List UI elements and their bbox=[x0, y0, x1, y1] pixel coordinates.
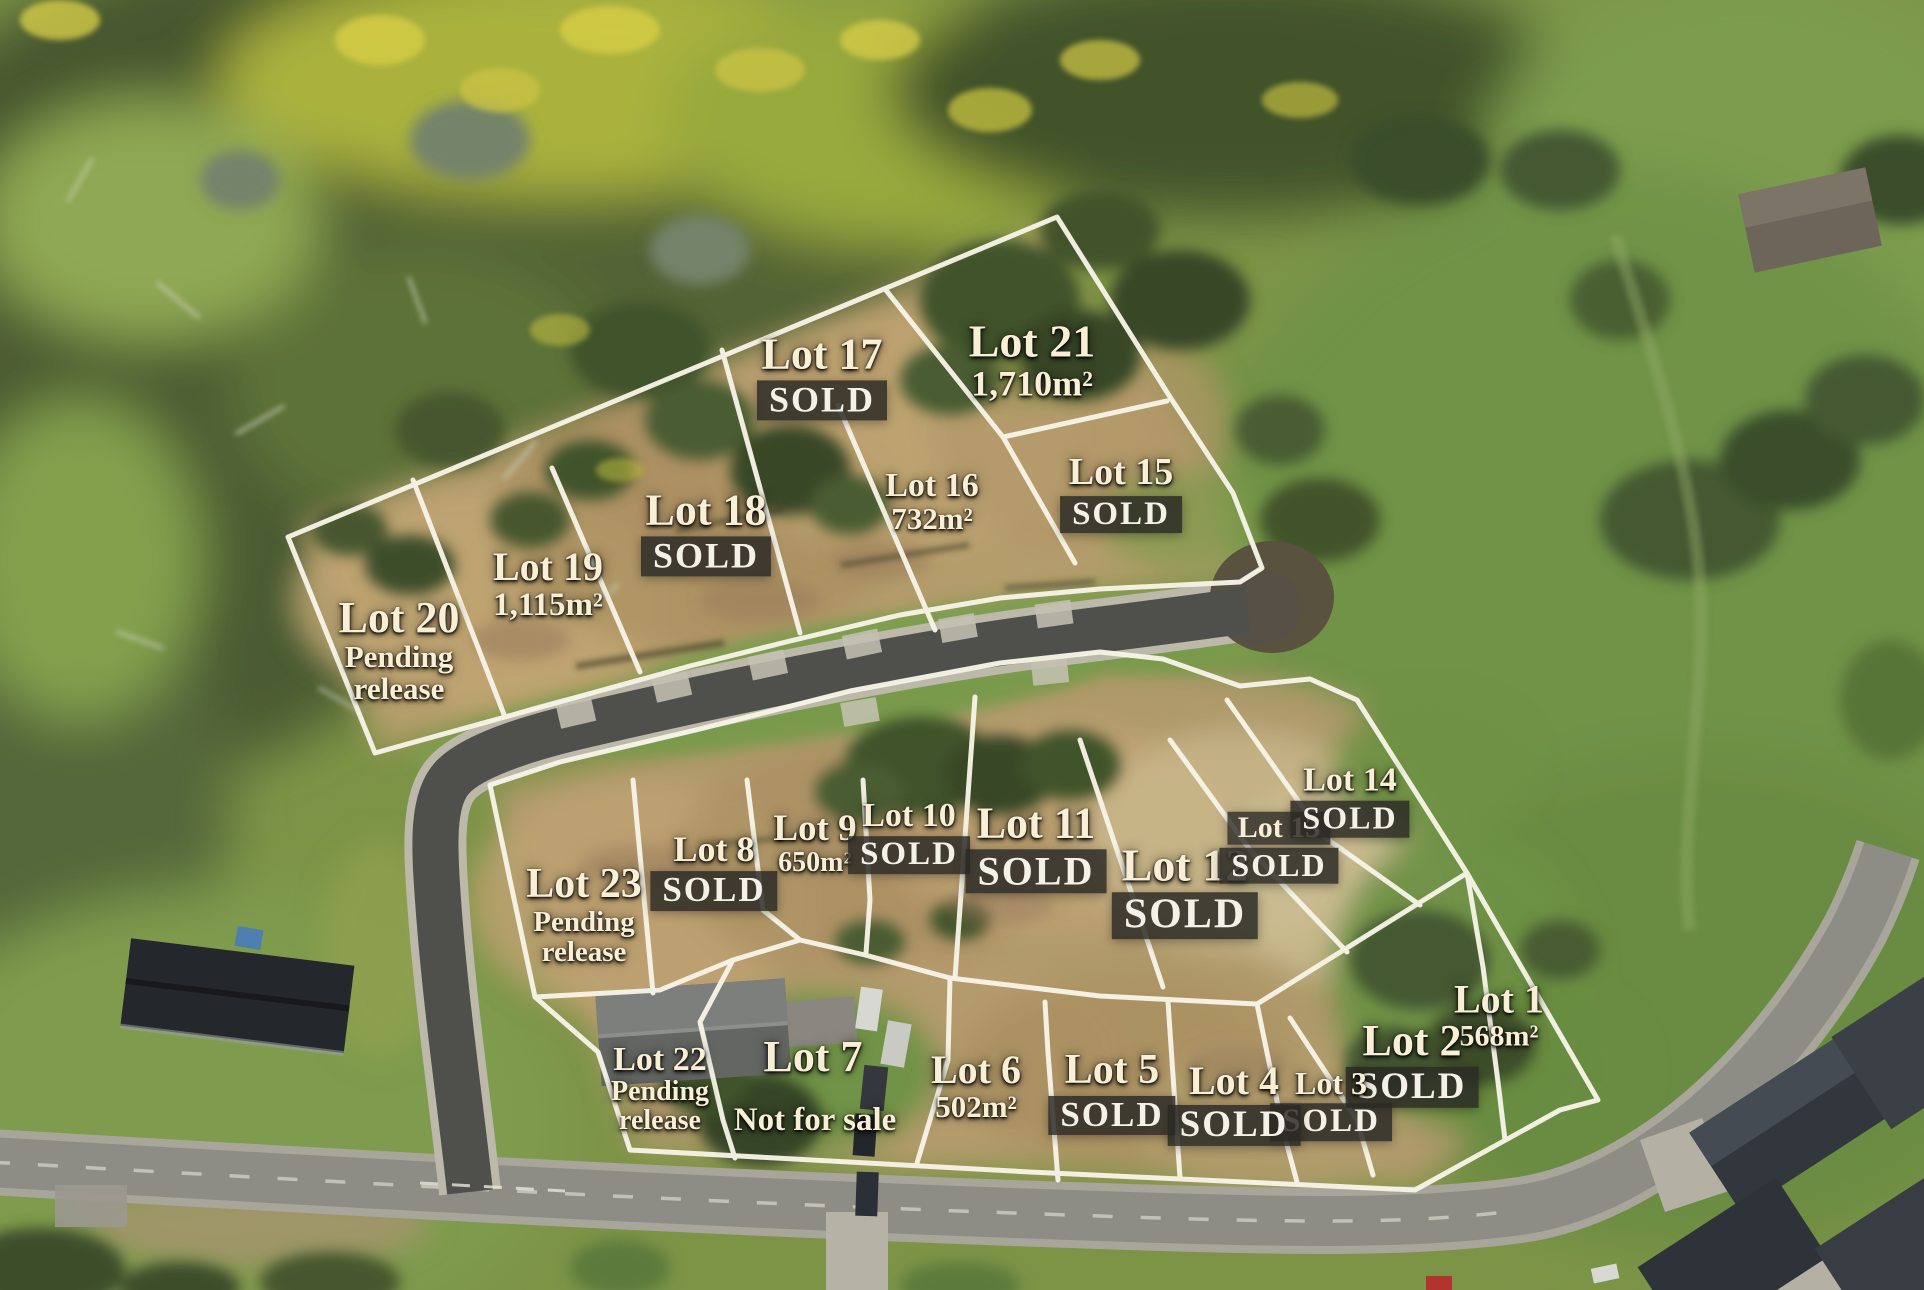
lot-9-label-line-1: 650m² bbox=[778, 849, 852, 878]
lot-4-label: Lot 4SOLD bbox=[1168, 1060, 1301, 1146]
lot-20-label-line-0: Lot 20 bbox=[339, 595, 460, 641]
lot-22-label-line-2: release bbox=[619, 1107, 701, 1136]
lot-22-label-line-0: Lot 22 bbox=[613, 1042, 707, 1077]
lot-21-label-line-0: Lot 21 bbox=[969, 317, 1096, 365]
lot-8-label-line-0: Lot 8 bbox=[674, 831, 755, 868]
lot-14-label: Lot 14SOLD bbox=[1290, 763, 1409, 838]
lot-17-label: Lot 17SOLD bbox=[757, 331, 887, 420]
lot-8-label: Lot 8SOLD bbox=[650, 831, 777, 911]
lot-16-label-line-1: 732m² bbox=[891, 504, 973, 536]
lot-23-label: Lot 23Pendingrelease bbox=[526, 863, 642, 967]
lot-14-label-line-0: Lot 14 bbox=[1303, 763, 1397, 798]
lot-15-label-line-0: Lot 15 bbox=[1069, 453, 1174, 493]
lot-19-label-line-1: 1,115m² bbox=[493, 588, 603, 622]
lot-10-label: Lot 10SOLD bbox=[848, 798, 970, 874]
lot-18-label-line-0: Lot 18 bbox=[645, 487, 766, 533]
lot-15-label: Lot 15SOLD bbox=[1060, 453, 1182, 533]
label-layer: Lot 17SOLDLot 211,710m²Lot 18SOLDLot 167… bbox=[0, 0, 1924, 1290]
lot-20-label-line-2: release bbox=[354, 673, 445, 705]
lot-21-label: Lot 211,710m² bbox=[969, 317, 1096, 402]
lot-12-label-line-1: SOLD bbox=[1112, 892, 1258, 939]
lot-23-label-line-1: Pending bbox=[533, 907, 635, 937]
lot-4-label-line-0: Lot 4 bbox=[1189, 1060, 1279, 1102]
lot-2-label-line-0: Lot 2 bbox=[1362, 1018, 1461, 1064]
lot-7-status-label: Not for sale bbox=[734, 1103, 897, 1137]
lot-21-label-line-1: 1,710m² bbox=[971, 365, 1093, 402]
lot-10-label-line-0: Lot 10 bbox=[862, 798, 956, 833]
lot-11-label-line-1: SOLD bbox=[966, 849, 1107, 894]
lot-20-label-line-1: Pending bbox=[345, 641, 454, 673]
lot-10-label-line-1: SOLD bbox=[848, 837, 970, 874]
lot-19-label-line-0: Lot 19 bbox=[493, 546, 603, 588]
lot-8-label-line-1: SOLD bbox=[650, 872, 777, 911]
lot-19-label: Lot 191,115m² bbox=[493, 546, 603, 622]
lot-1-label-line-0: Lot 1 bbox=[1454, 979, 1544, 1021]
lot-22-label: Lot 22Pendingrelease bbox=[611, 1042, 709, 1136]
lot-17-label-line-0: Lot 17 bbox=[761, 331, 882, 377]
lot-23-label-line-2: release bbox=[542, 937, 627, 967]
lot-5-label-line-0: Lot 5 bbox=[1065, 1049, 1160, 1093]
lot-7-name-label-line-0: Lot 7 bbox=[764, 1034, 863, 1080]
lot-11-label: Lot 11SOLD bbox=[966, 800, 1107, 893]
lot-7-status-label-line-0: Not for sale bbox=[734, 1103, 897, 1137]
lot-3-label-line-0: Lot 3 bbox=[1295, 1067, 1367, 1100]
lot-6-label-line-0: Lot 6 bbox=[931, 1049, 1021, 1091]
lot-22-label-line-1: Pending bbox=[611, 1078, 709, 1107]
lot-5-label: Lot 5SOLD bbox=[1048, 1049, 1175, 1135]
lot-11-label-line-0: Lot 11 bbox=[977, 800, 1096, 846]
lot-16-label: Lot 16732m² bbox=[885, 468, 979, 536]
lot-20-label: Lot 20Pendingrelease bbox=[339, 595, 460, 705]
lot-23-label-line-0: Lot 23 bbox=[526, 863, 642, 907]
lot-9-label: Lot 9650m² bbox=[773, 810, 856, 878]
lot-4-label-line-1: SOLD bbox=[1168, 1105, 1301, 1146]
lot-16-label-line-0: Lot 16 bbox=[885, 468, 979, 503]
lot-18-label-line-1: SOLD bbox=[641, 536, 771, 576]
lot-13-label-line-1: SOLD bbox=[1219, 848, 1338, 884]
lot-18-label: Lot 18SOLD bbox=[641, 487, 771, 576]
lot-17-label-line-1: SOLD bbox=[757, 380, 887, 420]
lot-7-name-label: Lot 7 bbox=[764, 1034, 863, 1080]
lot-5-label-line-1: SOLD bbox=[1048, 1096, 1175, 1135]
aerial-lot-map: Lot 17SOLDLot 211,710m²Lot 18SOLDLot 167… bbox=[0, 0, 1924, 1290]
lot-15-label-line-1: SOLD bbox=[1060, 496, 1182, 533]
lot-6-label: Lot 6502m² bbox=[931, 1049, 1021, 1123]
lot-9-label-line-0: Lot 9 bbox=[773, 810, 856, 848]
lot-14-label-line-1: SOLD bbox=[1290, 801, 1409, 837]
lot-6-label-line-1: 502m² bbox=[935, 1091, 1017, 1123]
